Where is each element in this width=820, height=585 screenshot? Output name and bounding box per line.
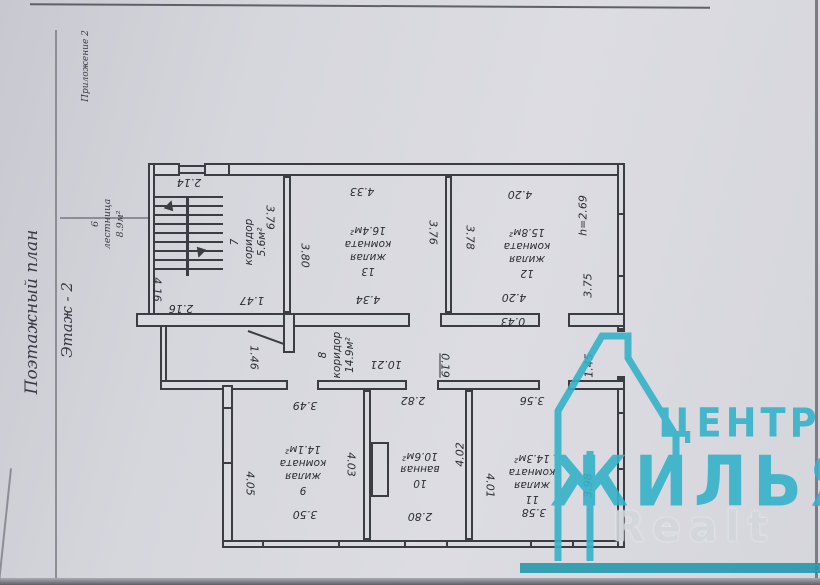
dimension-4-05: 4.05	[244, 462, 257, 506]
room-label-10: 10 ванная 10.6м²	[385, 445, 455, 489]
room-label-stairs: 6 лестница 8.9м²	[90, 181, 130, 267]
window-right-room11	[617, 414, 625, 468]
room-label-11: 11 жилая комната 14.3м²	[494, 447, 570, 505]
dimension-2-80: 2.80	[398, 510, 442, 523]
room-label-9: 9 жилая комната 14.1м²	[265, 438, 341, 496]
wall-top-mid	[204, 163, 230, 176]
dimension-h-2-69: h=2.69	[577, 189, 590, 243]
dimension-4-20-bottom: 4.20	[492, 291, 536, 304]
room-label-13: 13 жилая комната 16.4м²	[330, 219, 406, 277]
room-type: коридор	[243, 213, 257, 271]
stair-entry-door-line	[178, 172, 206, 174]
dimension-3-79: 3.79	[264, 196, 277, 240]
room-number: 8	[317, 325, 331, 385]
wall-bottom-3	[446, 540, 532, 548]
dimension-4-34: 4.34	[346, 293, 390, 306]
dimension-4-20-top: 4.20	[498, 188, 542, 201]
wall-bottom-2	[338, 540, 406, 548]
window-room9-left	[222, 409, 233, 462]
dimension-1-46: 1.46	[248, 336, 261, 380]
dimension-3-58: 3.58	[512, 506, 556, 519]
room-label-corridor8: 8 коридор 14.9м²	[317, 325, 363, 385]
room-type: жилая	[489, 252, 565, 266]
dimension-2-14: 2.14	[167, 176, 211, 189]
window-right-room12	[617, 215, 625, 275]
dimension-2-82: 2.82	[391, 394, 435, 407]
room-number: 11	[494, 491, 570, 505]
wall-outer-top	[228, 163, 625, 176]
wall-right-4	[617, 468, 625, 548]
balcony-door-jamb	[617, 330, 625, 332]
stair-entry-door-line	[178, 165, 206, 167]
dimension-4-33: 4.33	[340, 185, 384, 198]
wall-corridor-top-c	[568, 313, 625, 327]
wall-corridor7-room13	[283, 176, 291, 313]
dimension-3-76: 3.76	[427, 211, 440, 255]
room-area: 15.8м²	[489, 224, 565, 238]
room-type: жилая	[265, 469, 341, 483]
page-curl-line	[0, 468, 12, 583]
room-type: жилая	[494, 478, 570, 492]
appendix-note: Приложение 2	[81, 24, 95, 108]
window-bottom-room11	[532, 540, 572, 548]
dimension-2-16: 2.16	[159, 302, 203, 315]
page-edge-bottom	[0, 578, 820, 585]
wall-room9-left-upper	[222, 385, 233, 409]
room-number: 13	[330, 263, 406, 277]
page-frame-top	[30, 3, 710, 9]
scanned-floor-plan-page: Приложение 2 Поэтажный план Этаж - 2	[0, 0, 820, 585]
house-logo-icon	[528, 296, 820, 581]
dimension-10-21: 10.21	[364, 358, 408, 371]
room-area: 14.9м²	[344, 325, 358, 385]
room-area: 10.6м²	[385, 448, 455, 462]
watermark-layer: ЦЕНТР ЖИЛЬЯ Realt	[0, 0, 820, 585]
dimension-4-01: 4.01	[484, 464, 497, 508]
wall-corridor-bottom-c	[568, 380, 625, 390]
dimension-4-02: 4.02	[454, 433, 467, 477]
room-type: комната	[330, 236, 406, 250]
dimension-3-49: 3.49	[283, 399, 327, 412]
watermark-underline-bar	[520, 563, 820, 573]
room-area: 8.9м²	[115, 181, 127, 267]
room-type: ванная	[385, 462, 455, 476]
dimension-3-56: 3.56	[510, 394, 554, 407]
wall-room13-room12	[445, 176, 452, 313]
room-type: коридор	[331, 325, 345, 385]
room-number: 6	[90, 181, 102, 267]
room-number: 7	[229, 213, 243, 271]
floor-subtitle: Этаж - 2	[58, 265, 78, 375]
watermark-brand-top: ЦЕНТР	[658, 401, 820, 447]
room-type: лестница	[102, 181, 114, 267]
window-bottom-room9	[264, 540, 338, 548]
room-area: 14.1м²	[265, 441, 341, 455]
window-bottom-room10	[406, 540, 446, 548]
room-type: комната	[489, 238, 565, 252]
wall-corridor-bottom-b	[437, 380, 540, 390]
page-edge-right	[815, 0, 818, 585]
dimension-4-03: 4.03	[345, 443, 358, 487]
dimension-1-47: 1.47	[230, 294, 274, 307]
wall-stub-corridor	[283, 313, 295, 353]
room-number: 10	[385, 475, 455, 489]
wall-bottom-1	[222, 540, 264, 548]
room-number: 9	[265, 482, 341, 496]
wall-room9-left-lower	[222, 462, 233, 548]
wall-right-1	[617, 163, 625, 215]
room-number: 12	[489, 265, 565, 279]
page-frame-left	[55, 30, 57, 583]
room-area: 14.3м²	[494, 450, 570, 464]
wall-room9-room10	[363, 390, 371, 540]
dimension-3-78: 3.78	[464, 216, 477, 260]
dimension-3-75: 3.75	[582, 264, 595, 308]
watermark-brand-latin: Realt	[612, 502, 776, 551]
dimension-3-50: 3.50	[283, 508, 327, 521]
wall-left-mid	[160, 325, 167, 383]
room-type: комната	[265, 455, 341, 469]
room-type: жилая	[330, 250, 406, 264]
dimension-1-45: 1.45	[583, 344, 596, 388]
stair-center-rail	[186, 196, 189, 276]
room-label-12: 12 жилая комната 15.8м²	[489, 221, 565, 279]
dimension-3-80: 3.80	[299, 234, 312, 278]
dimension-3-98: 3.98	[582, 464, 595, 508]
room-type: комната	[494, 464, 570, 478]
page-title: Поэтажный план	[21, 227, 43, 397]
dimension-0-43: 0.43	[491, 315, 535, 328]
room-area: 16.4м²	[330, 222, 406, 236]
dimension-0-19: 0.19	[439, 344, 452, 388]
